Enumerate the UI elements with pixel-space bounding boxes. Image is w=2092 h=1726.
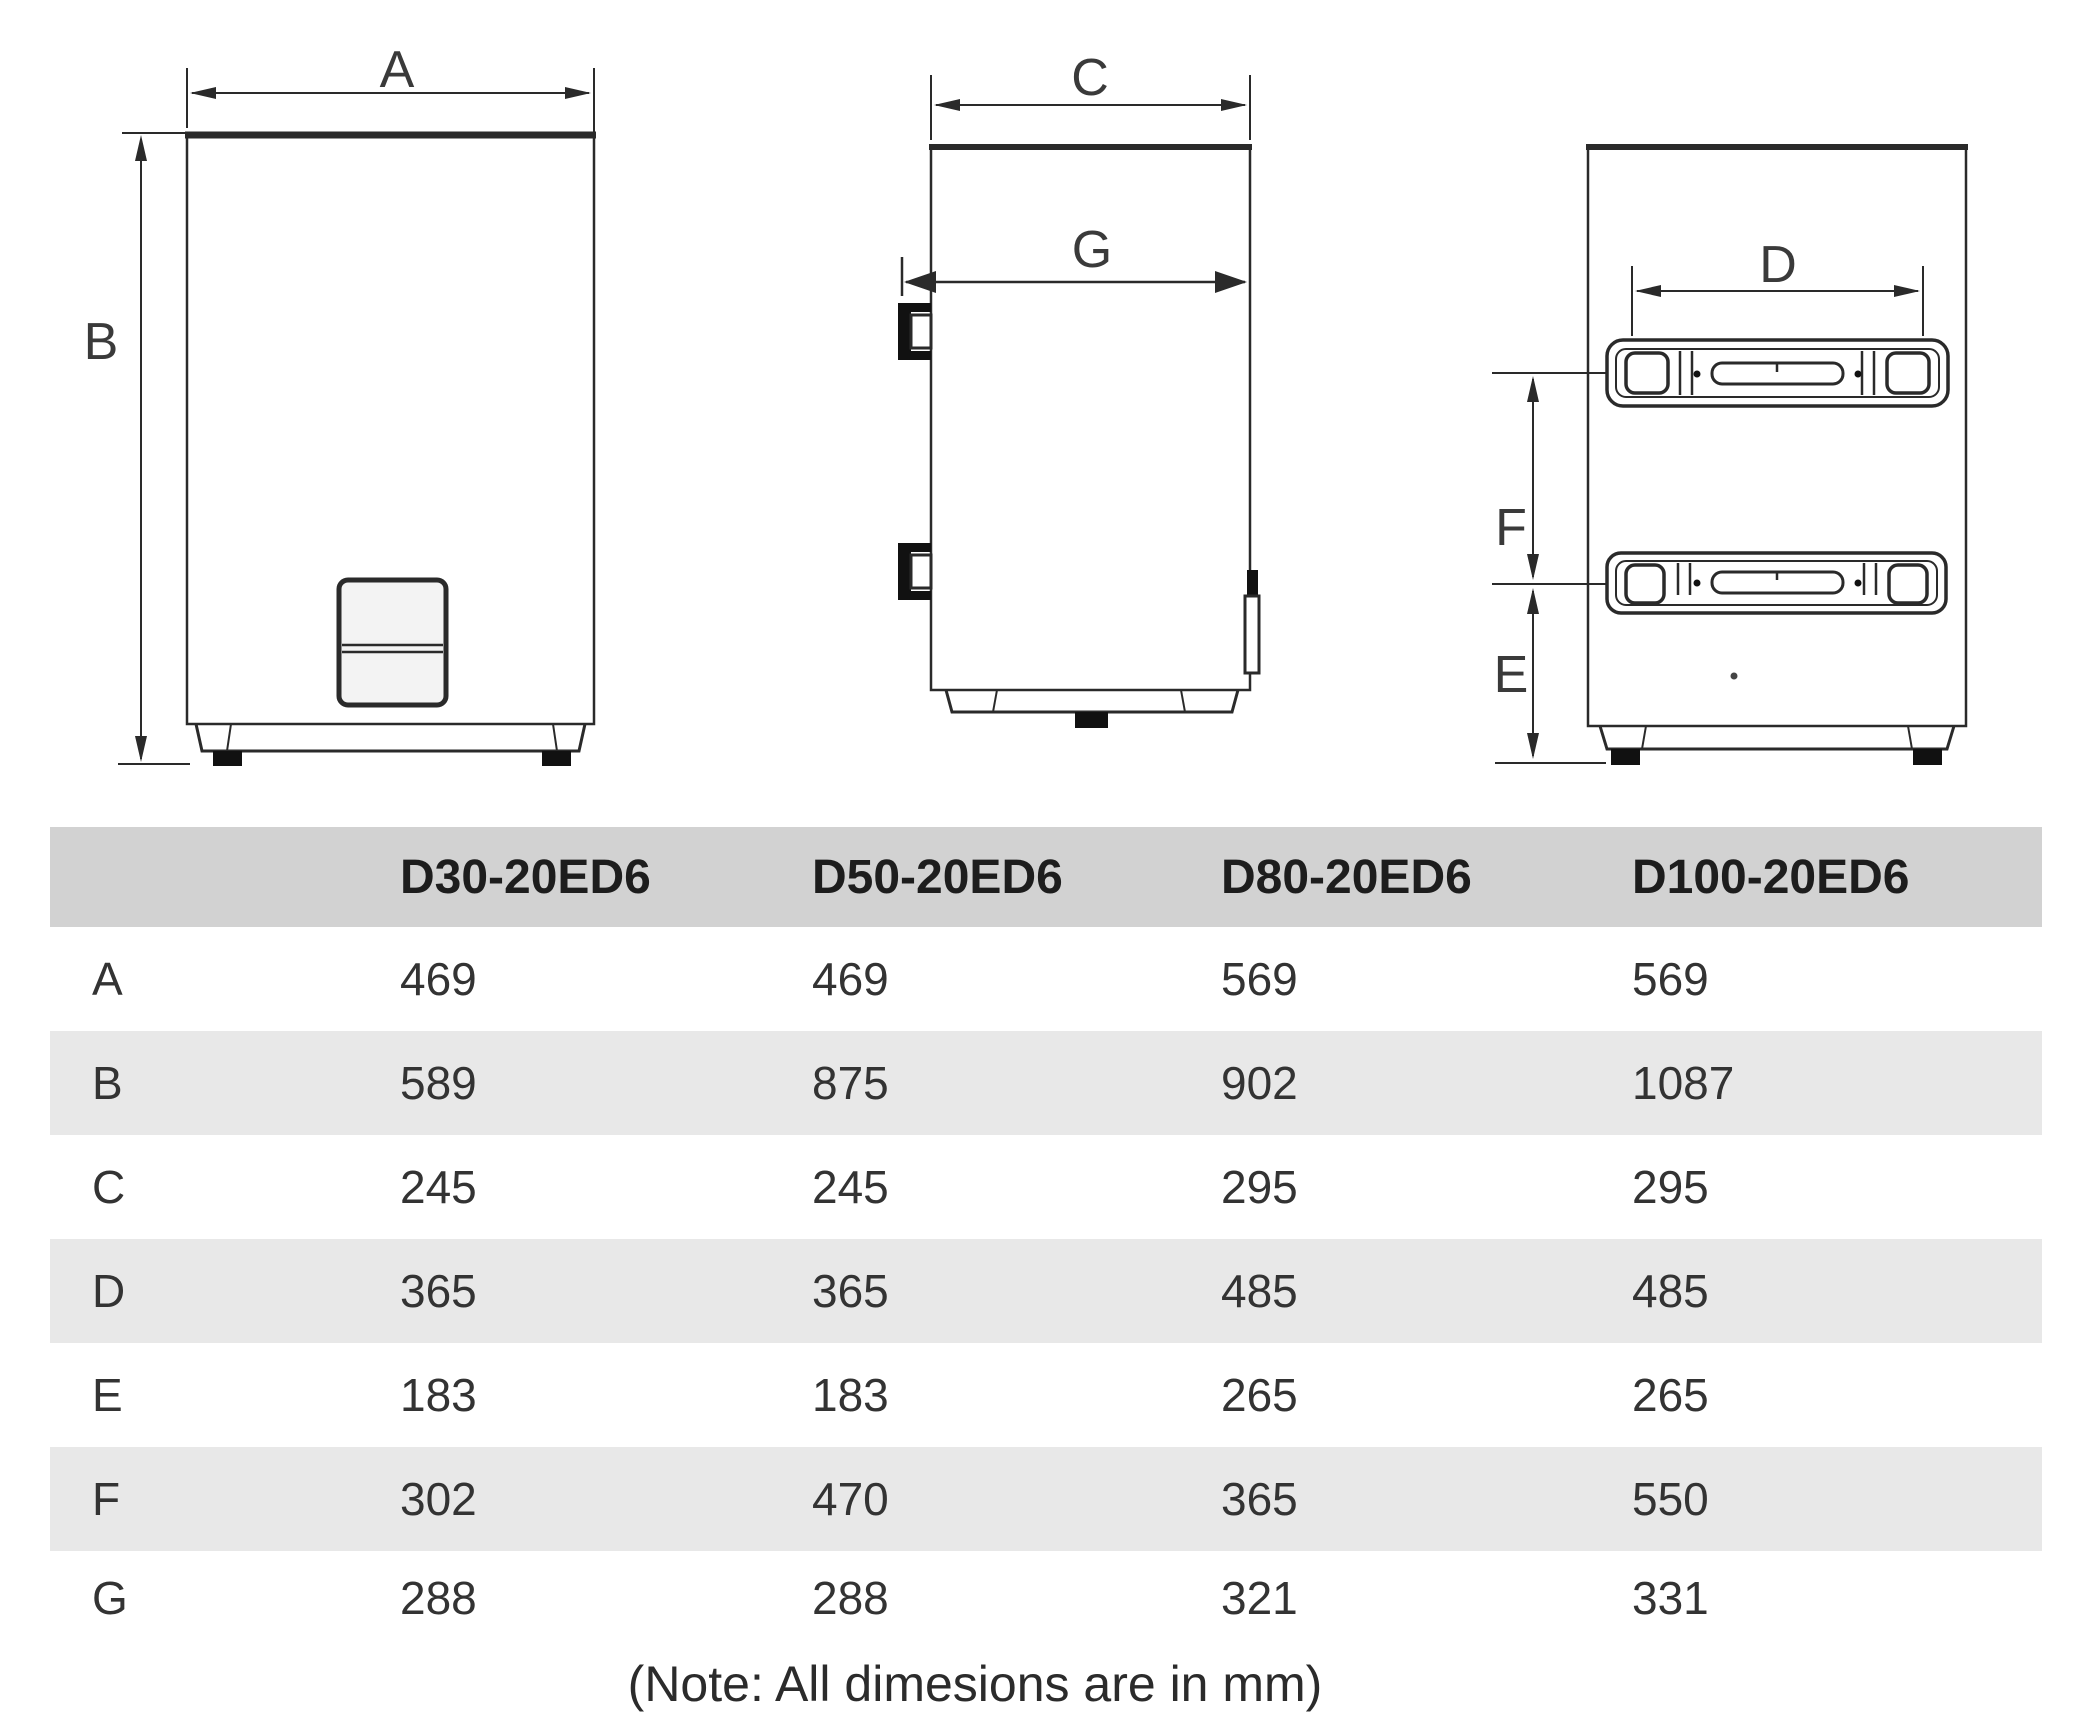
dim-label-g: G [1072, 221, 1112, 279]
table-row-d: D 365 365 485 485 [50, 1239, 2042, 1343]
front-view: A B [84, 41, 596, 766]
dim-label-c: C [1071, 49, 1109, 107]
row-label: C [50, 1160, 400, 1214]
row-label: F [50, 1472, 400, 1526]
mounting-rail-upper [1607, 340, 1948, 406]
side-base [946, 690, 1238, 728]
cell-value: 550 [1632, 1472, 2042, 1526]
units-note: (Note: All dimesions are in mm) [0, 1655, 1950, 1713]
cell-value: 183 [400, 1368, 812, 1422]
row-label: E [50, 1368, 400, 1422]
wall-bracket-upper-icon [898, 303, 931, 360]
cell-value: 365 [812, 1264, 1221, 1318]
table-row-g: G 288 288 321 331 [50, 1551, 2042, 1644]
rear-body [1588, 146, 1966, 726]
rear-foot-left [1611, 749, 1640, 765]
cell-value: 365 [1221, 1472, 1632, 1526]
cell-value: 295 [1221, 1160, 1632, 1214]
dim-label-b: B [84, 313, 119, 371]
column-header-model-3: D80-20ED6 [1221, 850, 1632, 905]
cell-value: 321 [1221, 1571, 1632, 1625]
column-header-model-4: D100-20ED6 [1632, 850, 2042, 905]
cell-value: 265 [1221, 1368, 1632, 1422]
table-row-f: F 302 470 365 550 [50, 1447, 2042, 1551]
cell-value: 265 [1632, 1368, 2042, 1422]
column-header-model-1: D30-20ED6 [400, 850, 812, 905]
cell-value: 485 [1632, 1264, 2042, 1318]
dimension-b [118, 133, 190, 764]
cell-value: 245 [400, 1160, 812, 1214]
table-row-a: A 469 469 569 569 [50, 927, 2042, 1031]
wall-bracket-lower-icon [898, 543, 931, 600]
column-header-model-2: D50-20ED6 [812, 850, 1221, 905]
water-heater-spec-sheet: A B [0, 0, 2092, 1726]
dim-label-f: F [1495, 499, 1527, 557]
cell-value: 331 [1632, 1571, 2042, 1625]
row-label: B [50, 1056, 400, 1110]
side-view: C G [898, 49, 1259, 728]
mounting-rail-lower [1607, 553, 1946, 613]
row-label: D [50, 1264, 400, 1318]
cell-value: 288 [812, 1571, 1221, 1625]
row-label: G [50, 1571, 400, 1625]
cell-value: 902 [1221, 1056, 1632, 1110]
dim-label-e: E [1494, 646, 1529, 704]
front-base [196, 724, 585, 766]
front-foot-right [542, 751, 571, 766]
cell-value: 302 [400, 1472, 812, 1526]
side-foot [1075, 712, 1108, 728]
dim-label-d: D [1759, 236, 1797, 294]
rear-base [1600, 726, 1954, 765]
dimension-f [1527, 376, 1539, 580]
cell-value: 470 [812, 1472, 1221, 1526]
cell-value: 469 [812, 952, 1221, 1006]
table-row-e: E 183 183 265 265 [50, 1343, 2042, 1447]
cell-value: 589 [400, 1056, 812, 1110]
dim-label-a: A [380, 41, 415, 99]
row-label: A [50, 952, 400, 1006]
rear-foot-right [1913, 749, 1942, 765]
table-row-c: C 245 245 295 295 [50, 1135, 2042, 1239]
control-panel [339, 580, 446, 705]
table-header-row: D30-20ED6 D50-20ED6 D80-20ED6 D100-20ED6 [50, 827, 2042, 927]
cell-value: 365 [400, 1264, 812, 1318]
table-row-b: B 589 875 902 1087 [50, 1031, 2042, 1135]
cell-value: 295 [1632, 1160, 2042, 1214]
dimension-drawings: A B [0, 0, 2092, 800]
rear-view: D F E [1492, 146, 1968, 765]
cell-value: 569 [1632, 952, 2042, 1006]
cell-value: 469 [400, 952, 812, 1006]
cell-value: 485 [1221, 1264, 1632, 1318]
rear-panel-dot [1731, 673, 1738, 680]
cell-value: 183 [812, 1368, 1221, 1422]
cell-value: 569 [1221, 952, 1632, 1006]
pipe-fitting-icon [1245, 570, 1259, 673]
cell-value: 1087 [1632, 1056, 2042, 1110]
dimensions-table: D30-20ED6 D50-20ED6 D80-20ED6 D100-20ED6… [50, 827, 2042, 1644]
cell-value: 875 [812, 1056, 1221, 1110]
cell-value: 288 [400, 1571, 812, 1625]
cell-value: 245 [812, 1160, 1221, 1214]
front-foot-left [213, 751, 242, 766]
